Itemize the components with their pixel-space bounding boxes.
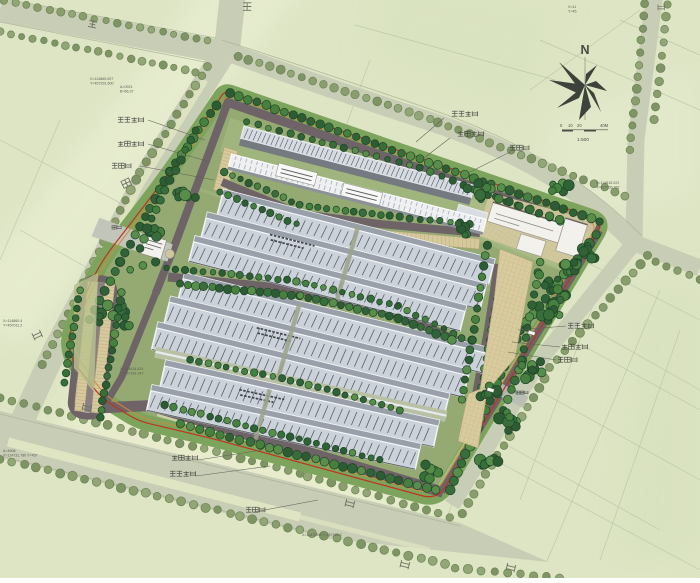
svg-text:1:500: 1:500 xyxy=(577,137,589,143)
svg-text:X=114818.424: X=114818.424 xyxy=(120,367,143,371)
svg-text:X=114731.780 Y=457: X=114731.780 Y=457 xyxy=(3,454,38,458)
svg-text:B=66.37: B=66.37 xyxy=(120,90,134,94)
svg-text:X=114815.022: X=114815.022 xyxy=(596,181,619,185)
svg-text:10: 10 xyxy=(568,123,573,128)
svg-text:Y=457011.2: Y=457011.2 xyxy=(3,324,22,328)
svg-text:A=0921: A=0921 xyxy=(120,85,133,89)
svg-text:Y=457291.600: Y=457291.600 xyxy=(90,82,113,86)
svg-text:Y=45: Y=45 xyxy=(568,10,577,14)
svg-text:A=4908: A=4908 xyxy=(3,449,16,453)
svg-text:Y=457655.762: Y=457655.762 xyxy=(596,186,619,190)
svg-text:X=114865.007: X=114865.007 xyxy=(90,77,113,81)
svg-text:X=11: X=11 xyxy=(568,5,576,9)
svg-text:40M: 40M xyxy=(600,123,609,128)
svg-text:X=114700.6 Y=457160.2: X=114700.6 Y=457160.2 xyxy=(302,533,342,537)
svg-text:N: N xyxy=(580,43,589,57)
svg-text:Y=457181.947: Y=457181.947 xyxy=(120,372,143,376)
svg-text:20: 20 xyxy=(577,123,582,128)
svg-text:X=114860.4: X=114860.4 xyxy=(3,319,22,323)
